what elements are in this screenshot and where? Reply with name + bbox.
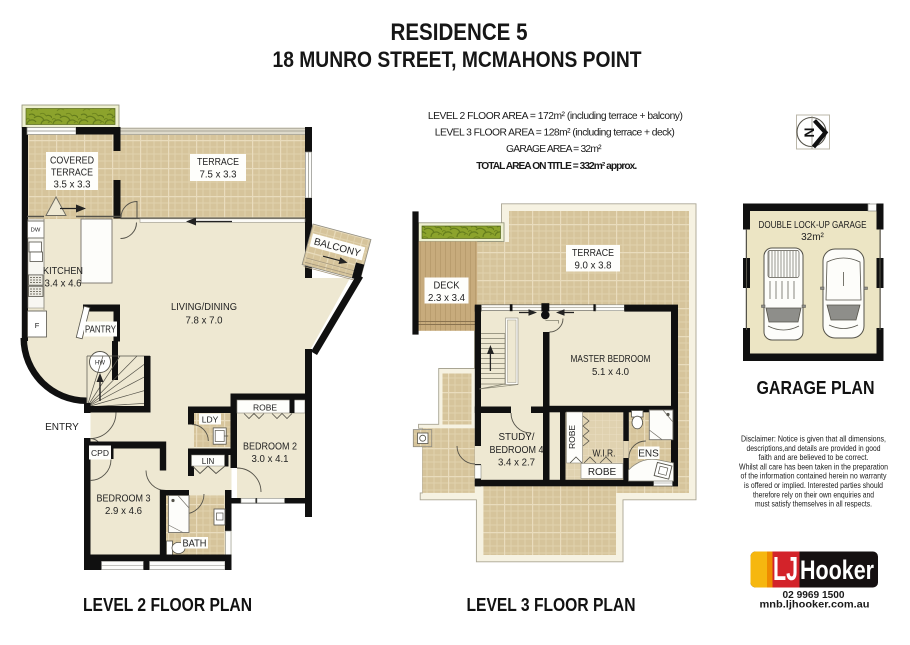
svg-text:LEVEL 3 FLOOR AREA = 128m² (i: LEVEL 3 FLOOR AREA = 128m² (including te… [435,128,675,139]
svg-text:RESIDENCE 5: RESIDENCE 5 [391,19,528,46]
svg-text:is offered or implied. Interes: is offered or implied. Interested partie… [744,481,883,490]
svg-text:ENS: ENS [638,449,659,460]
svg-text:GARAGE AREA = 32m²: GARAGE AREA = 32m² [506,144,602,155]
svg-text:DOUBLE LOCK-UP GARAGE: DOUBLE LOCK-UP GARAGE [759,220,867,231]
svg-text:BEDROOM 3: BEDROOM 3 [97,494,151,505]
svg-text:LEVEL 2 FLOOR AREA = 172m² (i: LEVEL 2 FLOOR AREA = 172m² (including te… [428,111,683,122]
svg-text:7.8 x 7.0: 7.8 x 7.0 [186,316,223,327]
svg-text:LDY: LDY [202,415,219,425]
svg-text:must satisfy themselves in all: must satisfy themselves in all respects. [755,500,872,509]
svg-text:BATH: BATH [183,539,207,550]
svg-text:Disclaimer: Notice is given th: Disclaimer: Notice is given that all dim… [741,435,886,444]
svg-text:5.1 x 4.0: 5.1 x 4.0 [592,367,629,378]
svg-text:Whilst all care has been taken: Whilst all care has been taken in the pr… [739,462,888,471]
svg-text:STUDY/: STUDY/ [499,432,535,443]
svg-text:faith and are believed to be c: faith and are believed to be correct. [759,453,869,462]
svg-text:CPD: CPD [91,448,109,458]
svg-text:BEDROOM 2: BEDROOM 2 [243,442,297,453]
svg-text:BEDROOM 4: BEDROOM 4 [490,445,544,456]
svg-text:3.4 x 4.6: 3.4 x 4.6 [45,279,82,290]
svg-text:mnb.ljhooker.com.au: mnb.ljhooker.com.au [760,599,870,611]
svg-text:TOTAL AREA ON TITLE = 332m² ap: TOTAL AREA ON TITLE = 332m² approx. [476,161,637,172]
svg-text:7.5 x 3.3: 7.5 x 3.3 [200,170,237,181]
svg-text:9.0 x 3.8: 9.0 x 3.8 [575,261,612,272]
svg-text:LIVING/DINING: LIVING/DINING [171,302,237,313]
svg-text:DW: DW [31,228,41,234]
svg-text:32m²: 32m² [801,232,824,243]
svg-text:3.0 x 4.1: 3.0 x 4.1 [252,454,289,465]
svg-text:TERRACE: TERRACE [51,168,93,179]
svg-text:TERRACE: TERRACE [197,157,239,168]
svg-text:ROBE: ROBE [253,403,277,413]
svg-text:DECK: DECK [434,281,460,292]
svg-text:PANTRY: PANTRY [85,325,116,336]
svg-text:ROBE: ROBE [588,467,617,478]
svg-text:F: F [35,321,40,330]
svg-text:ENTRY: ENTRY [45,422,79,433]
svg-text:2.9 x 4.6: 2.9 x 4.6 [105,506,142,517]
svg-text:MASTER BEDROOM: MASTER BEDROOM [571,354,651,365]
svg-text:LJ: LJ [773,550,798,587]
svg-text:descriptions,and details are p: descriptions,and details are provided in… [747,444,881,453]
svg-text:W.I.R.: W.I.R. [593,449,616,460]
svg-text:TERRACE: TERRACE [572,248,614,259]
svg-text:therefore rely on their own en: therefore rely on their own enquiries an… [753,490,874,499]
svg-text:3.5 x 3.3: 3.5 x 3.3 [54,180,91,191]
svg-text:GARAGE PLAN: GARAGE PLAN [757,378,875,398]
svg-text:LEVEL 3 FLOOR PLAN: LEVEL 3 FLOOR PLAN [467,595,636,615]
svg-text:N: N [802,127,818,137]
svg-text:KITCHEN: KITCHEN [43,266,83,277]
svg-text:18 MUNRO STREET, MCMAHONS POIN: 18 MUNRO STREET, MCMAHONS POINT [273,47,642,72]
svg-text:Hooker: Hooker [800,555,874,585]
svg-text:COVERED: COVERED [50,156,94,167]
svg-text:2.3 x 3.4: 2.3 x 3.4 [428,293,465,304]
svg-text:of the information contained h: of the information contained herein no w… [741,472,888,481]
svg-text:LEVEL 2 FLOOR PLAN: LEVEL 2 FLOOR PLAN [83,595,252,615]
svg-text:ROBE: ROBE [567,425,577,449]
svg-text:3.4 x 2.7: 3.4 x 2.7 [498,458,535,469]
svg-text:LIN: LIN [202,457,215,466]
